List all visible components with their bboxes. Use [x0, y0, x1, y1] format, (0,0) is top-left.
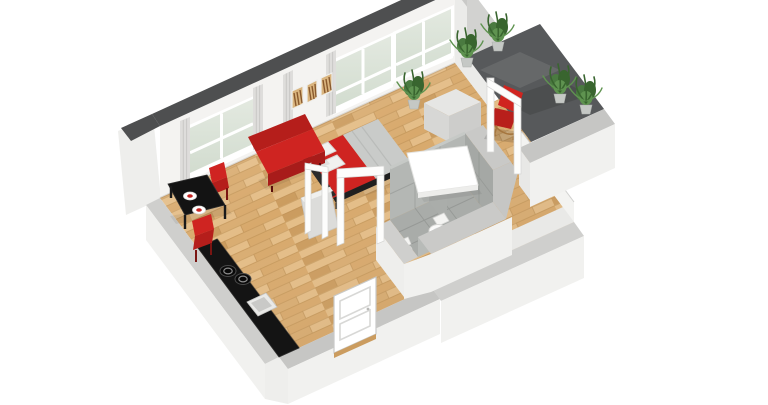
door-knob — [367, 308, 370, 311]
place-setting — [193, 206, 206, 214]
floorplan-render — [0, 0, 768, 405]
place-setting — [184, 192, 197, 200]
side-table-top — [407, 146, 478, 193]
floorplan-render-stage — [0, 0, 768, 405]
